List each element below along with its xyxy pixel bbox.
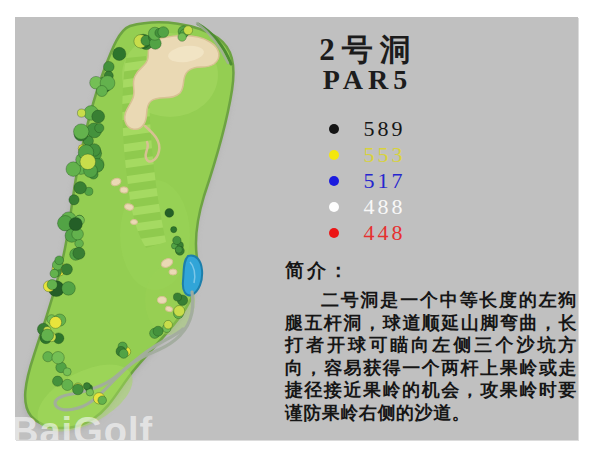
page: { "slide": { "background": "#c0c0c0" }, … bbox=[0, 0, 600, 458]
tee-distance-list: 589 553 517 488 448 bbox=[315, 116, 413, 246]
intro-body: 二号洞是一个中等长度的左狗腿五杆洞，球道顺延山脚弯曲，长打者开球可瞄向左侧三个沙… bbox=[285, 289, 577, 424]
tee-row-black: 589 bbox=[315, 116, 413, 142]
tee-row-blue: 517 bbox=[315, 168, 413, 194]
hole-par: PAR5 bbox=[265, 64, 465, 96]
yellow-tee-distance: 553 bbox=[353, 144, 413, 166]
red-tee-dot bbox=[329, 228, 339, 238]
watermark: BaiGolf bbox=[15, 410, 153, 440]
water-hazard bbox=[183, 256, 202, 296]
white-tee-dot bbox=[329, 202, 339, 212]
white-tee-distance: 488 bbox=[353, 196, 413, 218]
red-tee-distance: 448 bbox=[353, 222, 413, 244]
course-map bbox=[15, 17, 280, 440]
intro-heading: 简介： bbox=[285, 258, 351, 284]
tee-row-yellow: 553 bbox=[315, 142, 413, 168]
black-tee-dot bbox=[329, 124, 339, 134]
blue-tee-distance: 517 bbox=[353, 170, 413, 192]
yellow-tee-dot bbox=[329, 150, 339, 160]
black-tee-distance: 589 bbox=[353, 118, 413, 140]
blue-tee-dot bbox=[329, 176, 339, 186]
tee-row-white: 488 bbox=[315, 194, 413, 220]
tee-row-red: 448 bbox=[315, 220, 413, 246]
slide-background: BaiGolf 2号洞 PAR5 589 553 517 488 448 简介：… bbox=[15, 17, 578, 440]
